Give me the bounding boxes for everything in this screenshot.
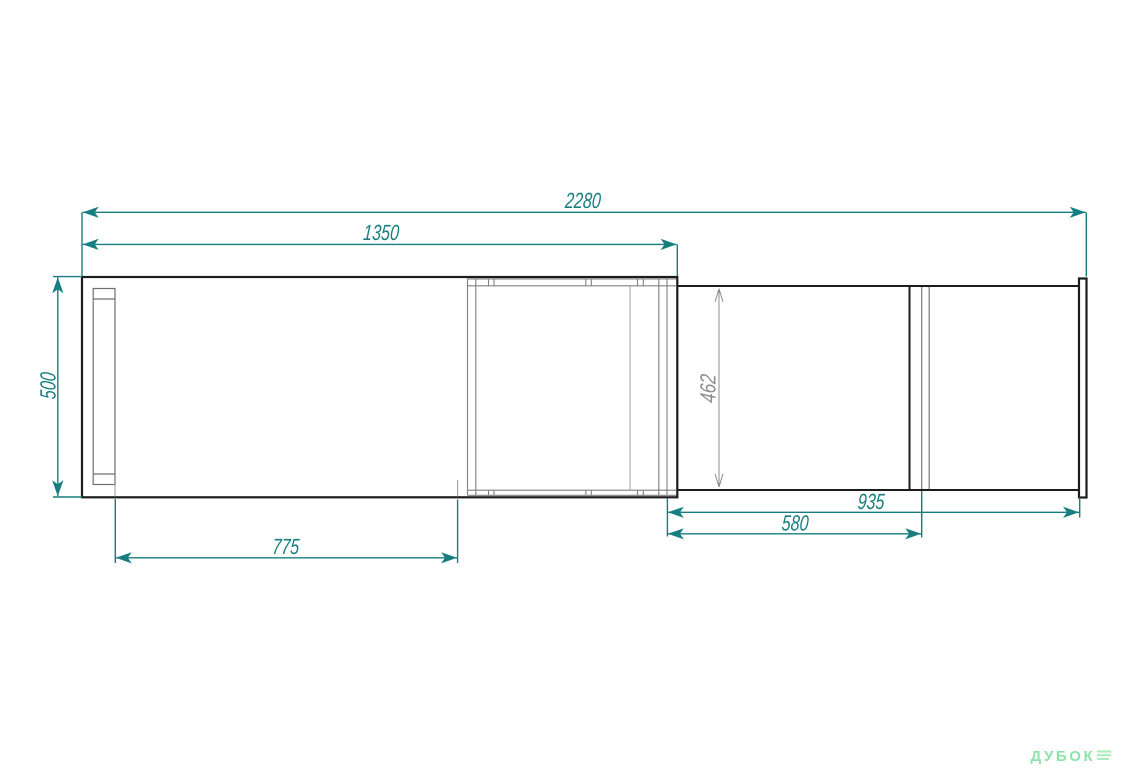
svg-text:935: 935	[857, 491, 886, 515]
svg-text:775: 775	[271, 536, 300, 560]
svg-text:500: 500	[37, 371, 61, 400]
svg-text:580: 580	[781, 512, 810, 536]
svg-text:1350: 1350	[362, 222, 400, 246]
svg-text:2280: 2280	[563, 190, 602, 214]
svg-text:ДУБОК: ДУБОК	[1031, 748, 1096, 765]
svg-text:462: 462	[697, 373, 721, 404]
